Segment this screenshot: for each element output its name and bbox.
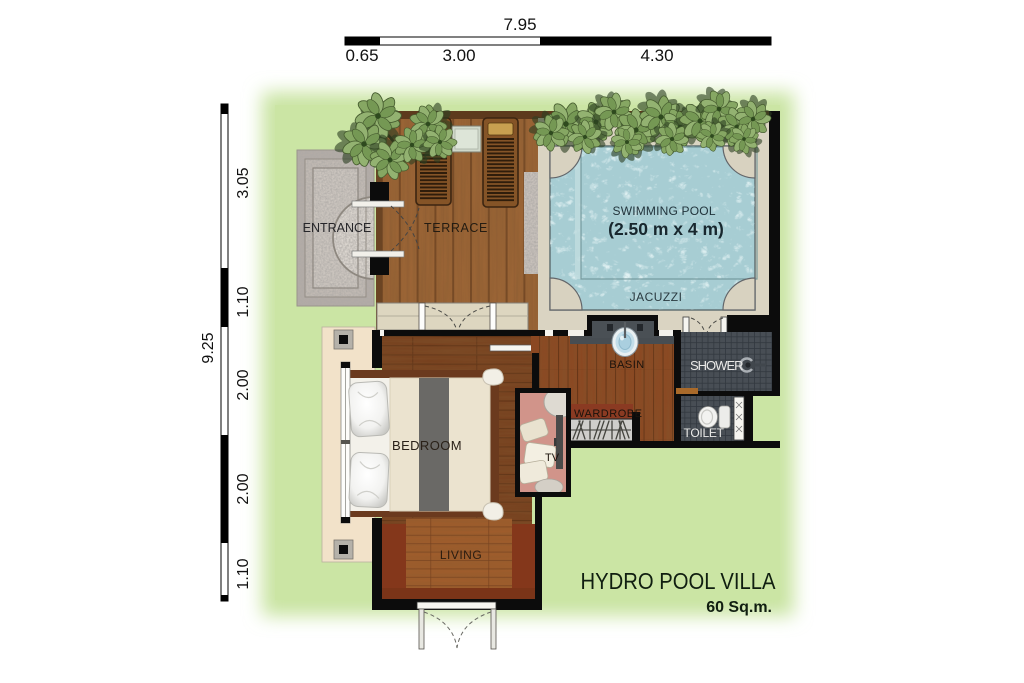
svg-text:TOILET: TOILET xyxy=(684,426,725,440)
svg-text:1.10: 1.10 xyxy=(235,558,252,589)
svg-text:LIVING: LIVING xyxy=(440,548,482,562)
svg-text:2.00: 2.00 xyxy=(235,369,252,400)
svg-text:2.00: 2.00 xyxy=(235,473,252,504)
svg-text:1.10: 1.10 xyxy=(235,286,252,317)
svg-text:TV: TV xyxy=(545,452,560,464)
svg-text:SHOWER: SHOWER xyxy=(690,358,744,373)
svg-text:0.65: 0.65 xyxy=(345,46,378,65)
svg-text:(2.50 m x 4 m): (2.50 m x 4 m) xyxy=(608,219,724,239)
svg-text:JACUZZI: JACUZZI xyxy=(630,290,683,304)
svg-text:HYDRO POOL VILLA: HYDRO POOL VILLA xyxy=(581,568,777,594)
svg-text:BASIN: BASIN xyxy=(609,359,645,371)
svg-text:9.25: 9.25 xyxy=(200,332,217,363)
svg-text:WARDROBE: WARDROBE xyxy=(574,408,642,420)
svg-text:ENTRANCE: ENTRANCE xyxy=(303,221,372,235)
svg-text:3.00: 3.00 xyxy=(442,46,475,65)
svg-text:3.05: 3.05 xyxy=(235,167,252,198)
svg-text:BEDROOM: BEDROOM xyxy=(392,438,462,453)
svg-text:4.30: 4.30 xyxy=(640,46,673,65)
svg-text:7.95: 7.95 xyxy=(503,15,536,34)
svg-text:TERRACE: TERRACE xyxy=(424,221,488,235)
svg-text:SWIMMING POOL: SWIMMING POOL xyxy=(613,204,716,218)
svg-text:60 Sq.m.: 60 Sq.m. xyxy=(706,599,772,616)
